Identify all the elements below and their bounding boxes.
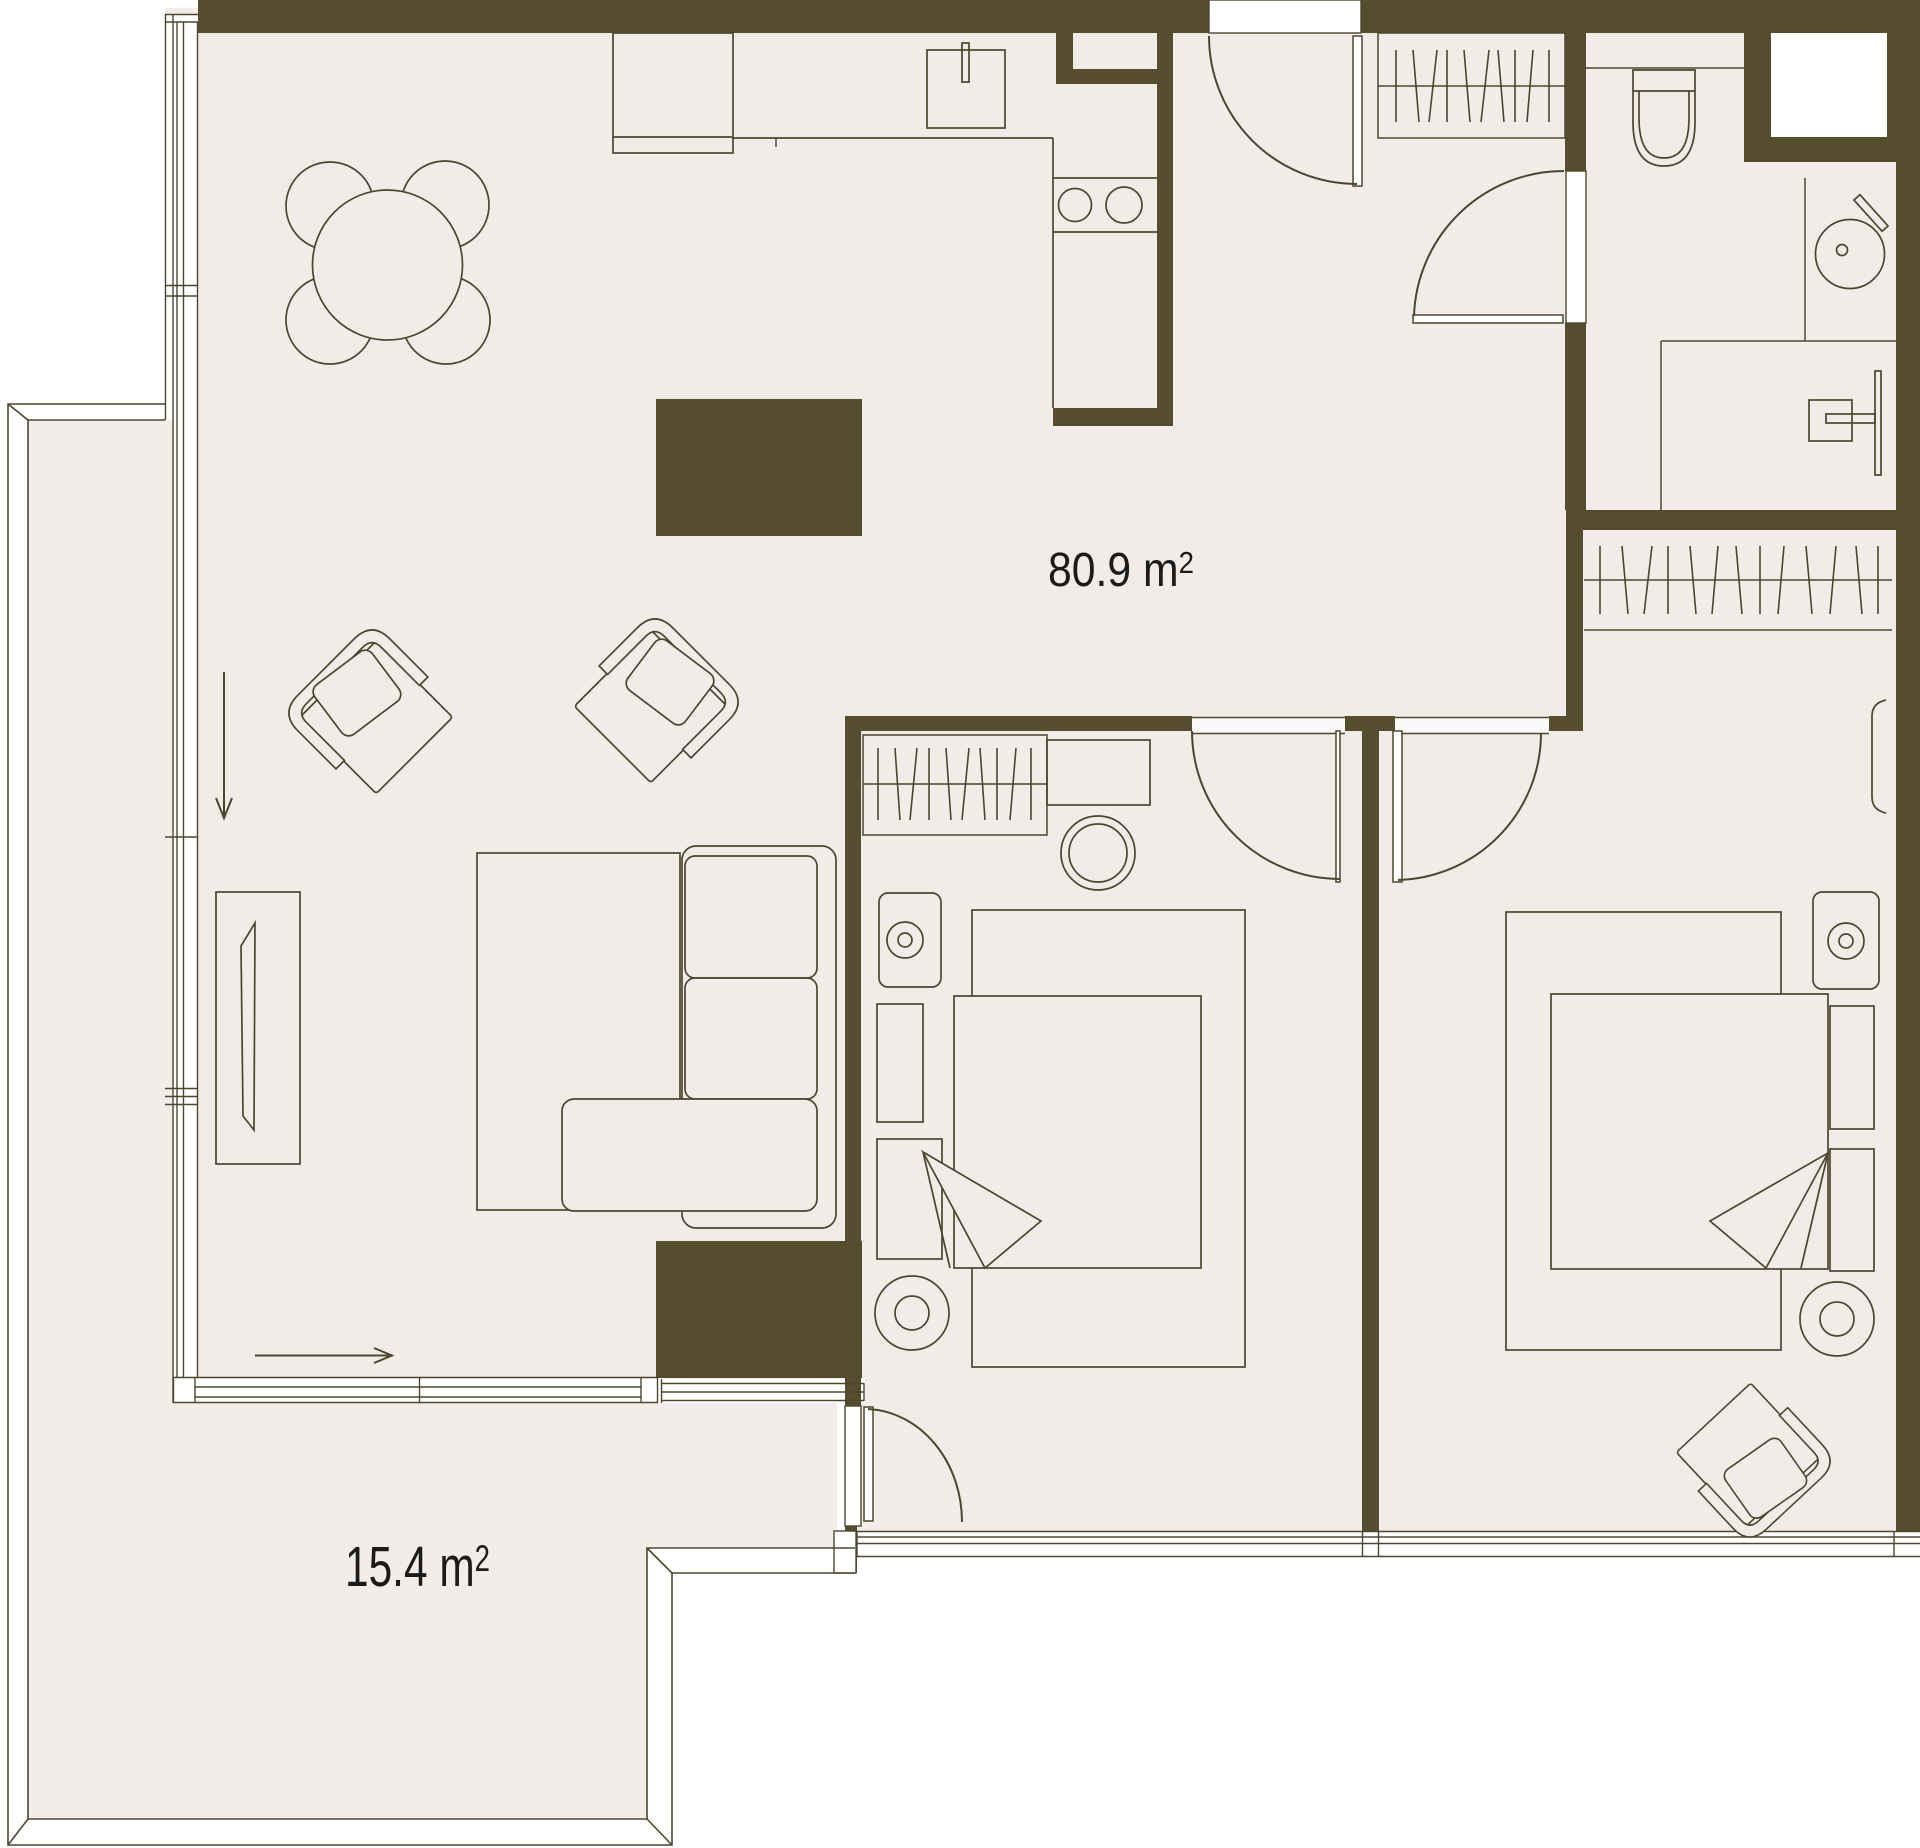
svg-text:15.4 m2: 15.4 m2 xyxy=(345,1535,490,1599)
svg-text:80.9 m2: 80.9 m2 xyxy=(1048,544,1194,597)
